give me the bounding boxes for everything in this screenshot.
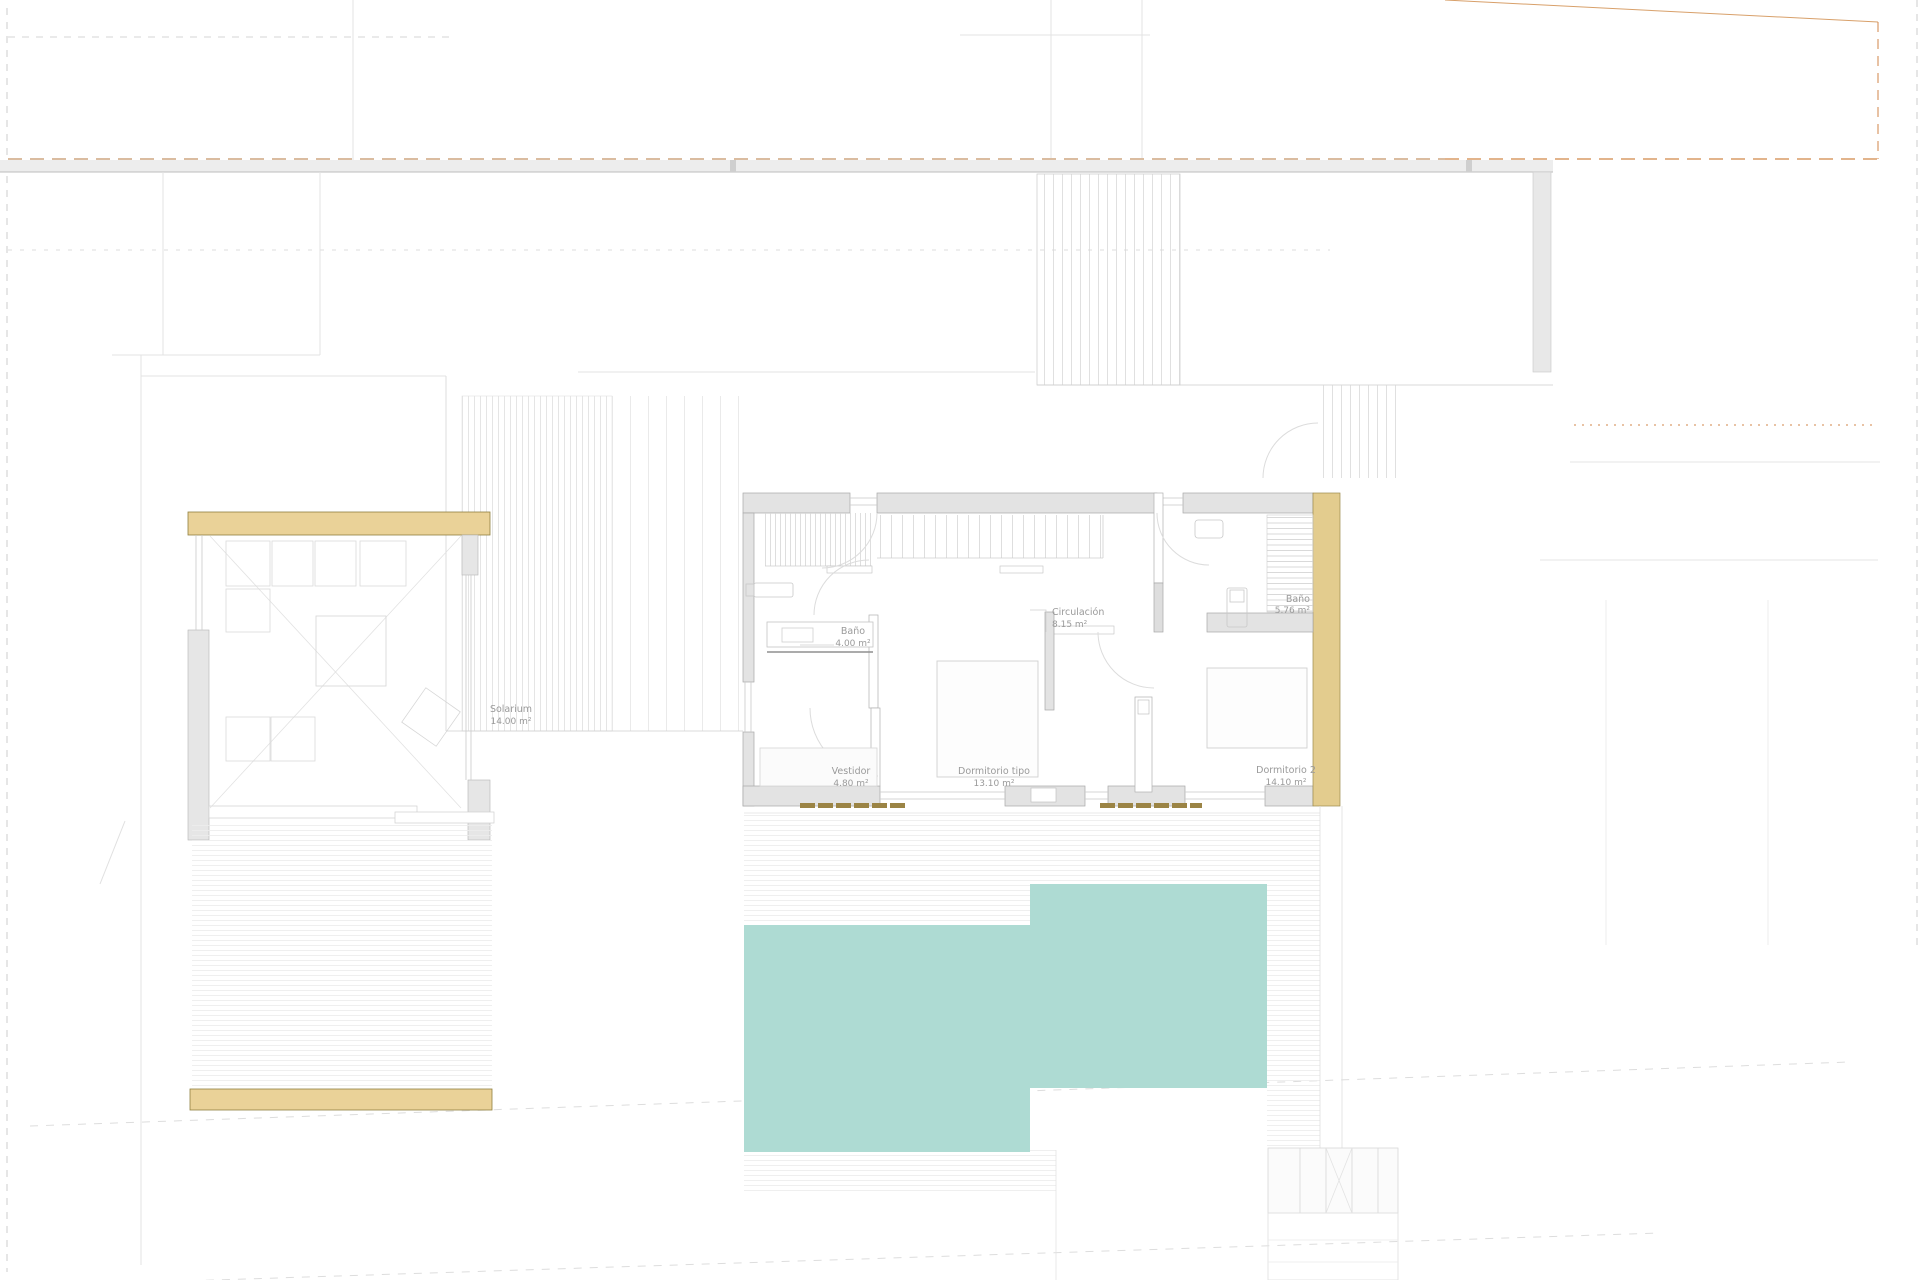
deck-boards-2: [1030, 813, 1267, 884]
bed-bedroom-type: [937, 661, 1038, 777]
stair-side-wall: [1533, 172, 1551, 372]
solarium-sliding-door-a: [209, 806, 417, 818]
band-tick-1: [730, 160, 736, 172]
label-solarium-area: 14.00 m²: [490, 717, 531, 727]
furniture-square: [272, 541, 313, 586]
solarium-deck-boards: [192, 824, 492, 1089]
pool-left: [744, 925, 1030, 1152]
furniture-square: [226, 589, 270, 632]
grid-lower: [1268, 1213, 1398, 1280]
pocket-door-upper: [1154, 493, 1163, 583]
basin-2: [1195, 520, 1223, 538]
label-bath2-name: Baño: [1286, 594, 1310, 605]
ramp-hatch-wide: [612, 396, 743, 731]
solarium-wall-left: [188, 630, 209, 840]
boundary-diagonal-orange: [1445, 0, 1878, 22]
terrain-dashed-2: [30, 1233, 1660, 1280]
louvre-markers: [800, 803, 1202, 808]
label-circulation-area: 8.15 m²: [1052, 620, 1088, 630]
deck-boards-4: [744, 1150, 1056, 1195]
furniture-square: [315, 541, 356, 586]
street-band: [0, 160, 1553, 172]
wall-top-3: [1183, 493, 1313, 513]
solarium-post-topright: [462, 535, 478, 575]
wood-wall-strip-right: [1313, 493, 1340, 806]
stair-door-arc: [1263, 423, 1318, 478]
entry-stair: [1037, 172, 1551, 478]
rotated-square: [402, 688, 460, 746]
wall-left-upper: [743, 513, 754, 682]
deck-boards-1: [744, 813, 1030, 925]
label-vestidor-area: 4.80 m²: [833, 779, 869, 789]
door-arc-entry-right: [1157, 513, 1209, 565]
solarium-wood-band-top: [188, 512, 490, 535]
bed-bedroom-2: [1207, 668, 1307, 748]
pool-terrace: [744, 806, 1398, 1280]
label-circulation-name: Circulación: [1052, 607, 1104, 618]
label-bedroom-type-name: Dormitorio tipo: [958, 766, 1030, 777]
wall-bottom-4: [1265, 786, 1313, 806]
label-bedroom-type-area: 13.10 m²: [973, 779, 1014, 789]
wall-top-1: [743, 493, 850, 513]
label-bath1-area: 4.00 m²: [835, 639, 871, 649]
stair-upper-treads: [1037, 174, 1180, 385]
band-tick-2: [1466, 160, 1472, 172]
wall-top-2: [877, 493, 1157, 513]
label-solarium-name: Solarium: [490, 704, 532, 715]
ramp-hatch-dense: [462, 396, 612, 731]
furniture-square: [360, 541, 406, 586]
pool-right: [1030, 884, 1267, 1088]
furniture-square: [271, 717, 315, 761]
solarium-interior: [210, 536, 461, 808]
door-arc-circulation: [1098, 632, 1154, 688]
label-bath2-area: 5.76 m²: [1275, 606, 1311, 616]
label-vestidor-name: Vestidor: [832, 766, 871, 777]
solarium-building: [188, 512, 494, 1110]
pool-stair-grid: [1268, 1148, 1398, 1280]
toilet-2-tank: [1230, 590, 1244, 602]
grid-upper: [1268, 1148, 1398, 1213]
label-bath1-name: Baño: [841, 626, 865, 637]
furniture-square: [226, 541, 270, 586]
floor-plan-page: Solarium 14.00 m² Baño 4.00 m² Circulaci…: [0, 0, 1920, 1280]
main-building: [743, 493, 1340, 808]
pocket-door-lower: [1135, 697, 1152, 792]
label-bedroom2-area: 14.10 m²: [1265, 778, 1306, 788]
label-bedroom2-name: Dormitorio 2: [1256, 765, 1316, 776]
sill-bar-2: [1000, 566, 1043, 573]
street-band-fill: [0, 160, 1553, 172]
solarium-wood-band-bottom: [190, 1089, 492, 1110]
furniture-square: [226, 717, 270, 761]
pocket-wall-upper: [1154, 583, 1163, 632]
floor-plan-drawing: Solarium 14.00 m² Baño 4.00 m² Circulaci…: [0, 0, 1920, 1280]
closet-hatch-a: [765, 513, 872, 566]
terrace-hatch: [446, 396, 743, 731]
window-detail: [1031, 788, 1056, 802]
solarium-sliding-door-b: [395, 812, 494, 823]
closet-hatch-b: [877, 515, 1103, 558]
skylight-square: [316, 616, 386, 686]
plot-corner-diagonal: [100, 821, 125, 884]
leader-circulation: [1030, 610, 1046, 632]
toilet-1: [754, 583, 793, 597]
deck-boards-3: [1267, 813, 1320, 1148]
stair-lower-treads: [1318, 385, 1402, 478]
